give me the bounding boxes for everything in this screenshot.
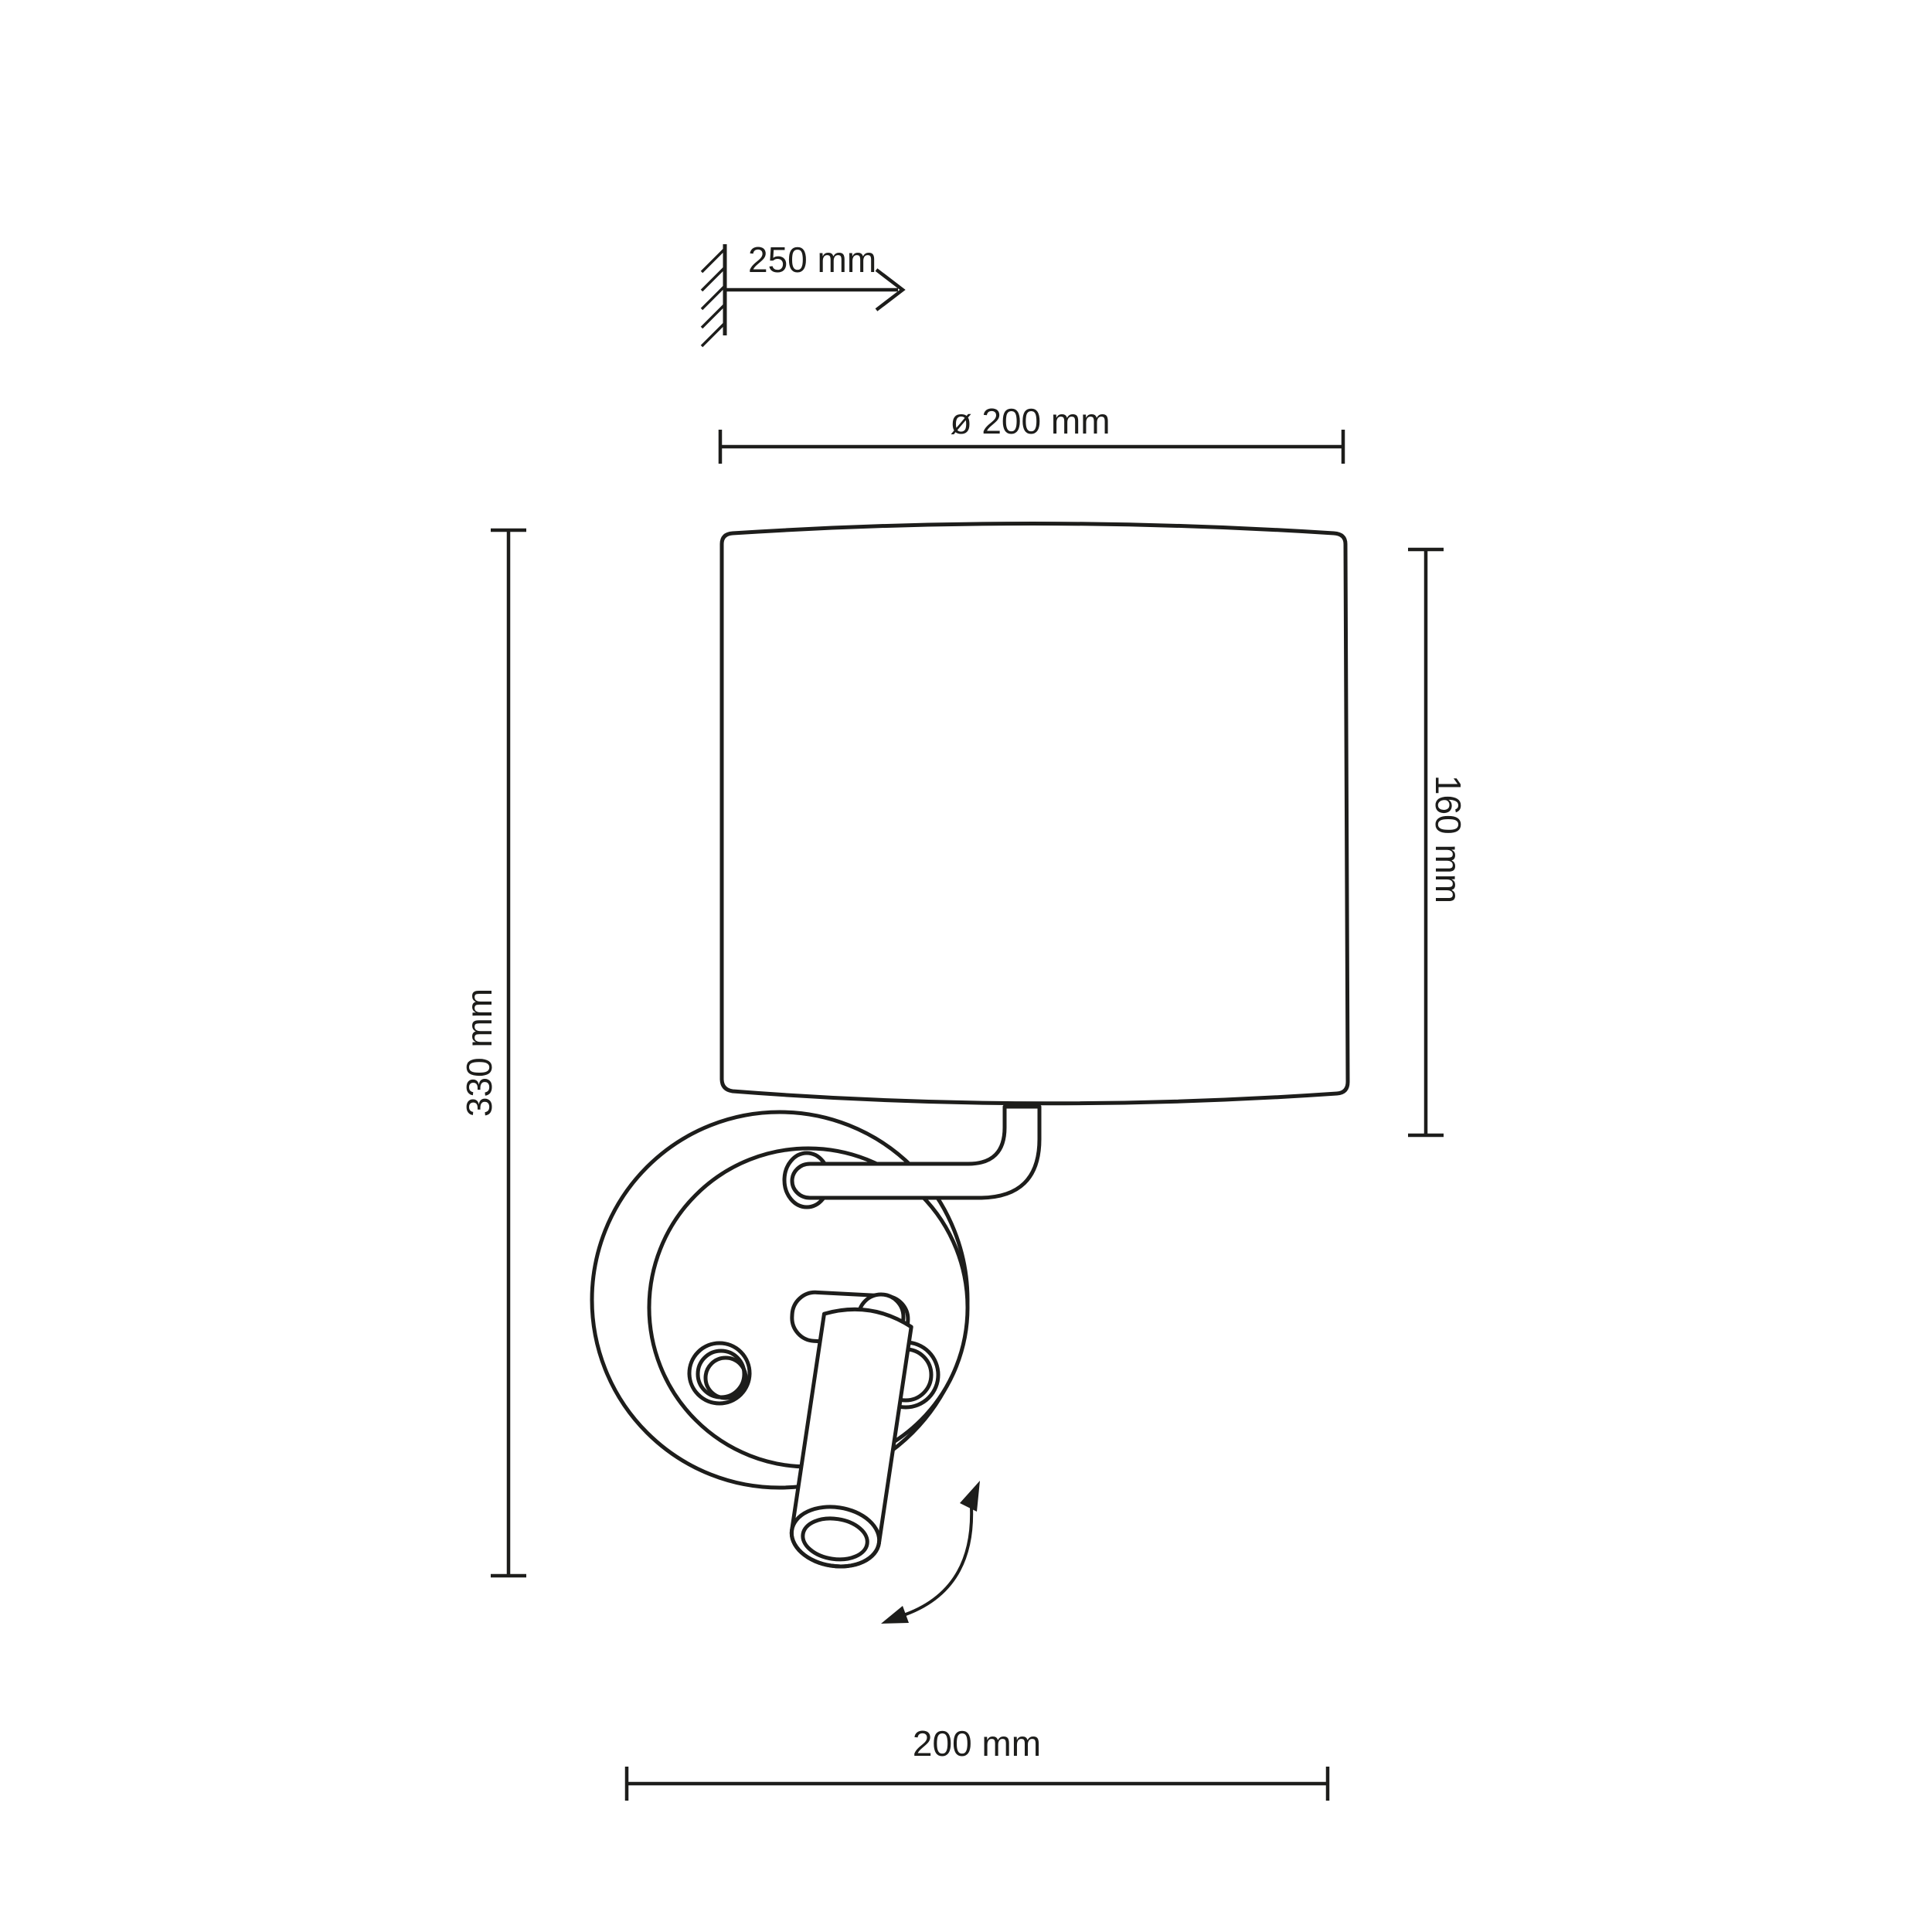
switch-button xyxy=(689,1343,750,1403)
lampshade-outline xyxy=(722,524,1348,1104)
dimension-label-shade-height: 160 mm xyxy=(1428,775,1468,903)
dimension-label-diameter: ø 200 mm xyxy=(950,401,1110,441)
wall-lamp-dimension-drawing: 250 mm ø 200 mm 330 mm 160 mm xyxy=(0,0,1932,1932)
drawing-canvas: 250 mm ø 200 mm 330 mm 160 mm xyxy=(0,0,1932,1932)
dimension-label-depth: 200 mm xyxy=(913,1723,1041,1764)
dimension-label-projection: 250 mm xyxy=(748,240,876,280)
dimension-label-total-height: 330 mm xyxy=(459,988,499,1117)
